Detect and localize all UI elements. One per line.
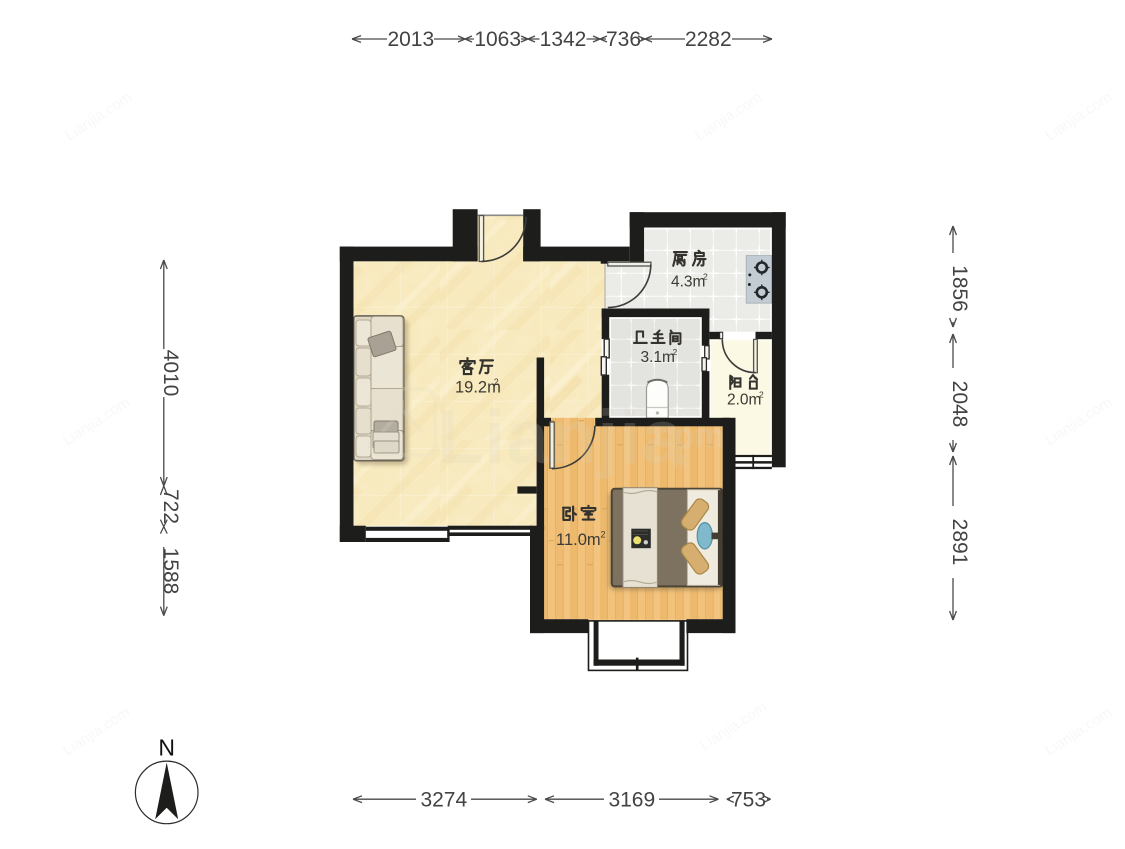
svg-text:722: 722 [159, 489, 182, 524]
svg-text:11.0m: 11.0m [556, 531, 601, 549]
svg-text:2: 2 [759, 390, 764, 400]
svg-text:2.0m: 2.0m [727, 392, 761, 409]
svg-text:2013: 2013 [387, 28, 434, 51]
svg-text:2: 2 [673, 347, 678, 357]
svg-text:2891: 2891 [948, 519, 971, 566]
svg-text:.com: .com [645, 417, 724, 455]
svg-text:1063: 1063 [474, 28, 521, 51]
svg-text:3.1m: 3.1m [641, 349, 675, 366]
svg-text:1856: 1856 [948, 265, 971, 312]
svg-text:4.3m: 4.3m [671, 274, 705, 291]
svg-text:2: 2 [494, 377, 499, 387]
svg-text:2: 2 [703, 272, 708, 282]
svg-text:3169: 3169 [608, 788, 655, 811]
svg-text:736: 736 [606, 28, 641, 51]
svg-text:3274: 3274 [420, 788, 467, 811]
svg-text:2: 2 [601, 530, 606, 540]
svg-text:N: N [158, 735, 175, 761]
svg-text:1588: 1588 [159, 548, 182, 595]
svg-text:2282: 2282 [685, 28, 732, 51]
svg-text:4010: 4010 [159, 350, 182, 397]
svg-text:2048: 2048 [948, 381, 971, 428]
svg-text:753: 753 [731, 788, 766, 811]
svg-text:1342: 1342 [540, 28, 587, 51]
